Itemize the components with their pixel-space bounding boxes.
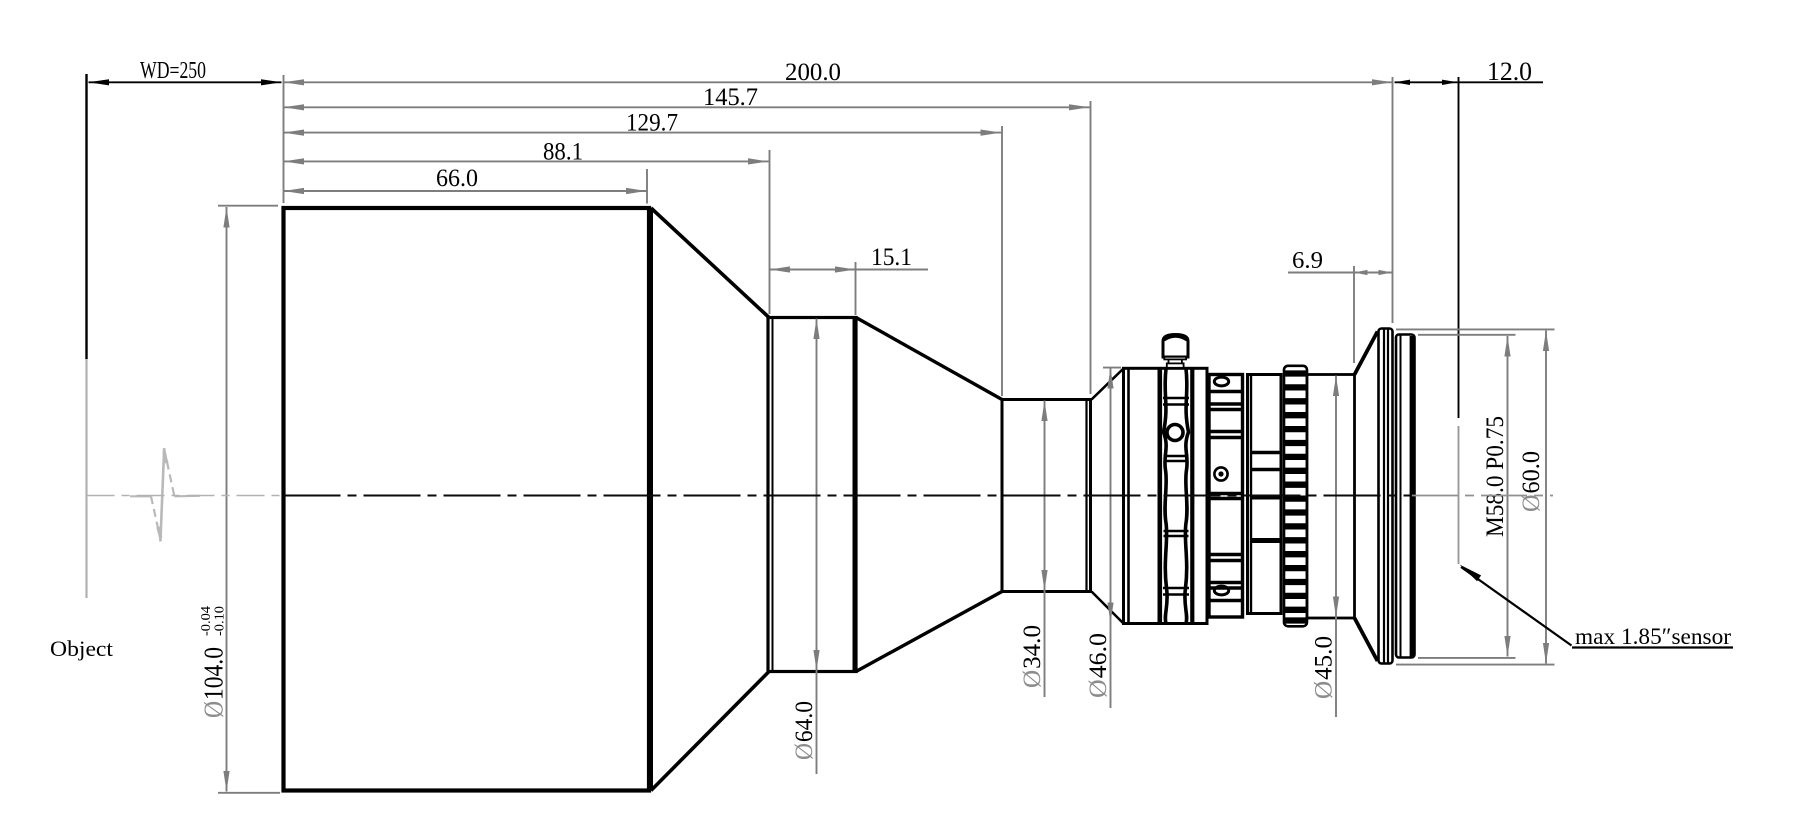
svg-text:Ø60.0: Ø60.0: [1518, 451, 1545, 512]
svg-text:Object: Object: [50, 636, 113, 661]
svg-text:129.7: 129.7: [626, 110, 678, 137]
svg-text:Ø64.0: Ø64.0: [791, 701, 818, 760]
svg-text:Ø104.0: Ø104.0: [199, 647, 229, 718]
svg-text:6.9: 6.9: [1292, 248, 1323, 274]
svg-text:Ø34.0: Ø34.0: [1019, 625, 1046, 688]
svg-text:88.1: 88.1: [543, 139, 583, 166]
svg-text:12.0: 12.0: [1487, 57, 1532, 86]
svg-text:145.7: 145.7: [703, 84, 758, 111]
svg-text:-0.10: -0.10: [212, 606, 227, 636]
svg-text:Ø46.0: Ø46.0: [1085, 633, 1112, 698]
svg-text:M58.0 P0.75: M58.0 P0.75: [1482, 416, 1509, 537]
svg-text:200.0: 200.0: [785, 59, 841, 86]
svg-text:66.0: 66.0: [436, 165, 478, 192]
svg-text:15.1: 15.1: [871, 244, 912, 271]
svg-text:Ø45.0: Ø45.0: [1311, 636, 1338, 699]
svg-text:max 1.85″sensor: max 1.85″sensor: [1575, 624, 1731, 649]
svg-text:WD=250: WD=250: [140, 58, 206, 84]
